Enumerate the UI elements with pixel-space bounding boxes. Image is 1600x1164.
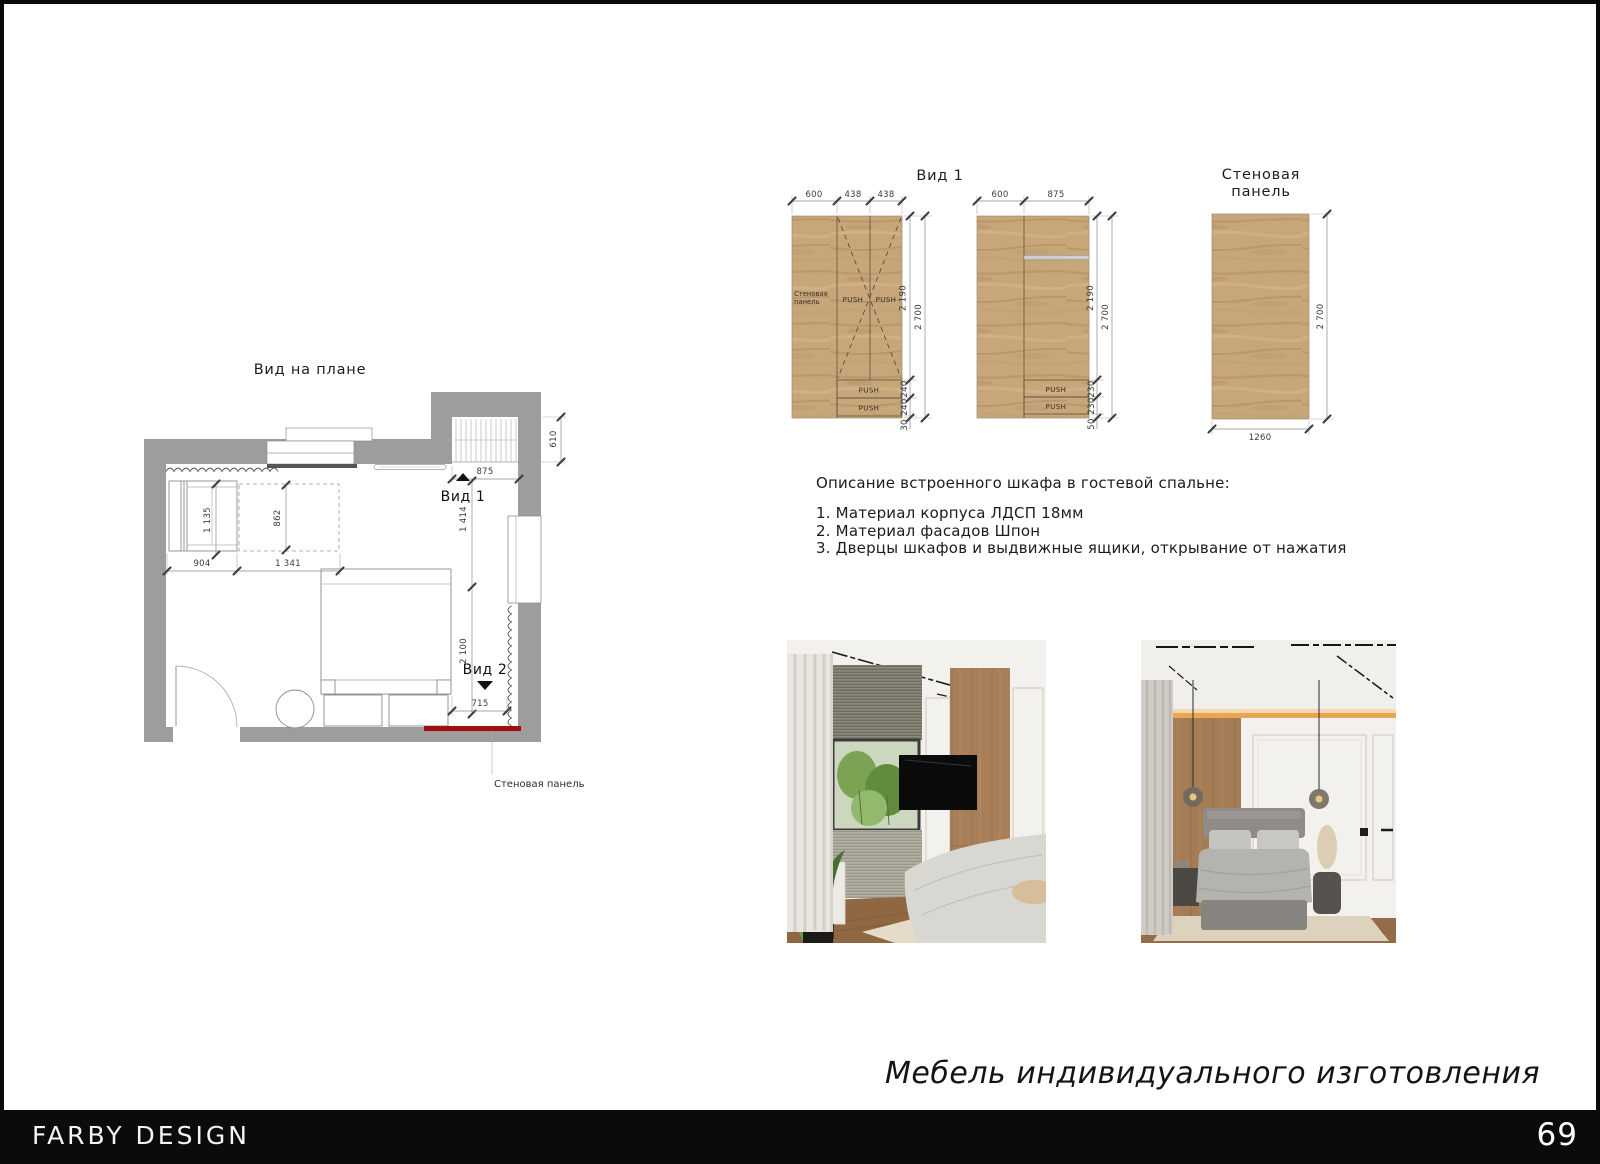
wall-panel-title-1: Стеновая — [1222, 167, 1300, 183]
window-sill-bar — [267, 464, 357, 468]
wall-panel-board — [1212, 214, 1309, 419]
svg-text:240: 240 — [900, 380, 910, 397]
plan-dashed-zone — [239, 484, 339, 551]
footer-bar: FARBY DESIGN 69 — [4, 1110, 1596, 1160]
bedroom-render-photo-window — [787, 640, 1046, 943]
plan-headboard-right — [389, 695, 448, 726]
svg-text:904: 904 — [193, 559, 210, 569]
plan-title: Вид на плане — [254, 362, 367, 378]
svg-text:1 414: 1 414 — [459, 506, 469, 532]
wardrobe-description: Описание встроенного шкафа в гостевой сп… — [816, 474, 1376, 558]
brand-name: FARBY DESIGN — [32, 1121, 250, 1150]
view1-elevations-drawing: Вид 1 Стеновая панель PUSH PUSH PUSH PUS… — [754, 154, 1134, 444]
svg-text:2 190: 2 190 — [899, 285, 909, 311]
door-handle-bar — [1024, 256, 1089, 260]
svg-text:240: 240 — [900, 398, 910, 415]
svg-text:862: 862 — [273, 509, 283, 526]
svg-text:PUSH: PUSH — [843, 296, 864, 304]
svg-text:Вид 2: Вид 2 — [463, 662, 508, 678]
plan-console — [374, 465, 446, 470]
plan-pouf — [276, 690, 314, 728]
svg-text:PUSH: PUSH — [876, 296, 897, 304]
plan-door — [176, 666, 237, 727]
plan-closet-hatch — [452, 419, 519, 462]
svg-text:1 341: 1 341 — [275, 559, 301, 569]
elevation-a: Стеновая панель PUSH PUSH PUSH PUSH 600 … — [789, 190, 933, 431]
svg-text:438: 438 — [877, 190, 894, 200]
svg-text:230: 230 — [1087, 380, 1097, 397]
svg-text:600: 600 — [991, 190, 1008, 200]
svg-text:2 190: 2 190 — [1086, 285, 1096, 311]
bedroom-render-photo-bed — [1141, 640, 1396, 943]
page-number: 69 — [1537, 1117, 1578, 1153]
svg-text:875: 875 — [1047, 190, 1064, 200]
svg-text:2 100: 2 100 — [459, 638, 469, 664]
design-album-page: Вид на плане — [0, 0, 1600, 1164]
elev-a-panel-label-2: панель — [794, 298, 820, 306]
svg-text:600: 600 — [805, 190, 822, 200]
plan-bed — [321, 569, 451, 726]
plan-wall-panel-marker — [424, 726, 521, 731]
svg-text:2 700: 2 700 — [914, 304, 924, 330]
view2-marker: Вид 2 — [463, 662, 508, 690]
description-heading: Описание встроенного шкафа в гостевой сп… — [816, 474, 1376, 492]
curtain-wave-top — [166, 468, 278, 472]
plan-headboard-left — [324, 695, 382, 726]
svg-text:715: 715 — [471, 699, 488, 709]
svg-text:438: 438 — [844, 190, 861, 200]
studio-tagline: Мебель индивидуального изготовления — [885, 1056, 1540, 1091]
description-item: 1. Материал корпуса ЛДСП 18мм — [816, 505, 1376, 523]
svg-text:230: 230 — [1087, 397, 1097, 414]
svg-text:PUSH: PUSH — [859, 387, 880, 395]
description-item: 3. Дверцы шкафов и выдвижные ящики, откр… — [816, 540, 1376, 558]
svg-text:875: 875 — [476, 467, 493, 477]
svg-text:Вид 1: Вид 1 — [441, 489, 486, 505]
elev-a-panel-label-1: Стеновая — [794, 290, 828, 298]
svg-text:PUSH: PUSH — [859, 405, 880, 413]
svg-text:1260: 1260 — [1249, 433, 1272, 443]
svg-text:PUSH: PUSH — [1046, 386, 1067, 394]
plan-window-right — [508, 516, 541, 603]
view1-marker: Вид 1 — [441, 473, 486, 505]
description-item: 2. Материал фасадов Шпон — [816, 523, 1376, 541]
svg-text:50: 50 — [1087, 418, 1097, 429]
svg-text:2 700: 2 700 — [1101, 304, 1111, 330]
svg-text:PUSH: PUSH — [1046, 403, 1067, 411]
svg-text:2 700: 2 700 — [1316, 304, 1326, 330]
wall-panel-title-2: панель — [1231, 184, 1290, 200]
view1-title: Вид 1 — [916, 168, 963, 184]
wall-panel-drawing: Стеновая панель 2 700 1260 — [1184, 154, 1354, 454]
svg-text:1 135: 1 135 — [203, 507, 213, 533]
elevation-b: PUSH PUSH 600 875 2 190 230 230 50 2 700 — [974, 190, 1120, 430]
floor-plan-drawing: Вид на плане — [122, 356, 592, 804]
plan-wall-panel-label: Стеновая панель — [494, 779, 585, 790]
svg-text:30: 30 — [900, 419, 910, 430]
svg-text:610: 610 — [549, 430, 559, 447]
